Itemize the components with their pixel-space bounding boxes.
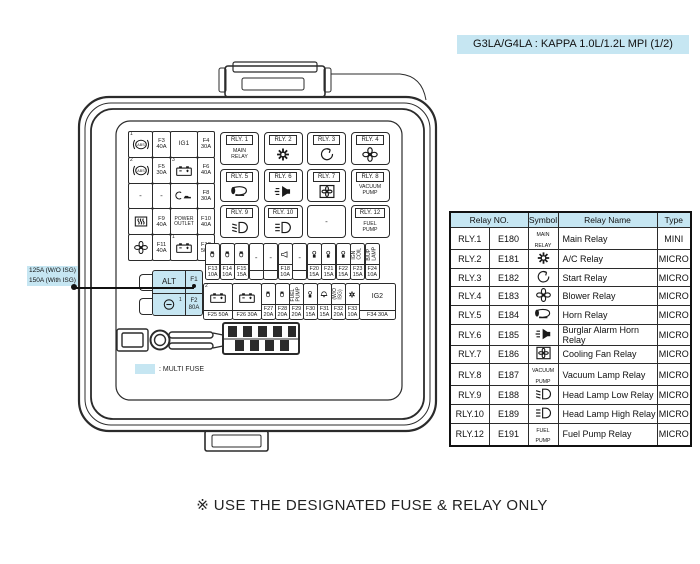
horn-icon bbox=[229, 184, 251, 199]
fuse-amp-label: F3 40A bbox=[153, 137, 170, 151]
fuse-cell-f15: F15 15A bbox=[234, 243, 249, 280]
svg-text:ABS: ABS bbox=[137, 169, 145, 173]
cooling-fan-icon bbox=[533, 346, 554, 360]
fuse-amp-label: F20 15A bbox=[308, 264, 321, 279]
fuse-cell-text: IG2 bbox=[372, 294, 383, 300]
fuse-cell-symbol bbox=[221, 244, 234, 264]
callout-line-1: 125A (W/O ISG) bbox=[27, 266, 78, 276]
fuse-cell-symbol: IG2 bbox=[360, 284, 395, 310]
table-row-rly-8: RLY.8E187VACUUM PUMPVacuum Lamp RelayMIC… bbox=[450, 364, 691, 386]
fuse-cell-text: POWER OUTLET bbox=[174, 217, 194, 227]
col-header-relay-no: Relay NO. bbox=[450, 212, 528, 228]
table-row-rly-6: RLY.6E185Burglar Alarm Horn RelayMICRO bbox=[450, 324, 691, 345]
fuse-amp-label bbox=[264, 270, 277, 279]
fuse-amp-label: F33 10A bbox=[346, 304, 359, 319]
ignition-coil-icon bbox=[337, 248, 350, 261]
left-grid-cell: F4 30A bbox=[197, 131, 215, 158]
cell-type: MICRO bbox=[657, 404, 691, 423]
fuse-icon bbox=[206, 248, 219, 261]
alt-side-tab bbox=[139, 298, 152, 315]
cell-code: E185 bbox=[489, 324, 528, 345]
table-row-rly-3: RLY.3E182Start RelayMICRO bbox=[450, 268, 691, 287]
alt-cell-f1: F1 bbox=[186, 271, 202, 294]
cell-relay: RLY.12 bbox=[450, 423, 489, 446]
ac-compressor-icon bbox=[272, 147, 294, 162]
cell-relay: RLY.3 bbox=[450, 268, 489, 287]
heater-icon bbox=[131, 215, 151, 228]
fuse-amp-label: F18 10A bbox=[279, 264, 292, 279]
fuse-cell-text: IG1 bbox=[179, 141, 189, 147]
bell-icon bbox=[318, 288, 330, 301]
cell-relay-name: Main Relay bbox=[558, 228, 657, 250]
cell-symbol bbox=[528, 250, 558, 269]
relay-label: RLY. 2 bbox=[269, 135, 296, 145]
table-row-rly-7: RLY.7E186Cooling Fan RelayMICRO bbox=[450, 345, 691, 364]
cell-code: E191 bbox=[489, 423, 528, 446]
abs-icon: ABS bbox=[131, 138, 151, 151]
relay-symbol bbox=[221, 182, 258, 201]
cell-relay: RLY.10 bbox=[450, 404, 489, 423]
fuse-amp-label: F15 15A bbox=[235, 264, 248, 279]
alt-cell: ALT bbox=[153, 271, 186, 294]
fuse-cell-symbol bbox=[346, 284, 359, 304]
cell-relay-name: Head Lamp Low Relay bbox=[558, 386, 657, 405]
left-grid-cell bbox=[128, 208, 153, 235]
relay-table-header-row: Relay NO.SymbolRelay NameType bbox=[450, 212, 691, 228]
blower-fan-icon bbox=[131, 241, 151, 254]
cell-code: E188 bbox=[489, 386, 528, 405]
relay-symbol: VACUUM PUMP bbox=[352, 182, 389, 201]
fuse-amp-label: F34 30A bbox=[360, 310, 395, 319]
table-row-rly-9: RLY.9E188Head Lamp Low RelayMICRO bbox=[450, 386, 691, 405]
fuse-cell-symbol bbox=[262, 284, 275, 304]
cell-code: E189 bbox=[489, 404, 528, 423]
fuse-icon bbox=[221, 248, 234, 261]
fuse-superscript: 1 bbox=[130, 132, 133, 137]
cell-relay-name: Head Lamp High Relay bbox=[558, 404, 657, 423]
relay-symbol-text: FUEL PUMP bbox=[363, 222, 378, 233]
fuse-superscript: 1 bbox=[172, 235, 175, 240]
left-grid-cell: F8 30A bbox=[197, 183, 215, 210]
start-relay-icon bbox=[316, 147, 338, 162]
table-row-rly-5: RLY.5E184Horn RelayMICRO bbox=[450, 305, 691, 324]
manual-page: G3LA/G4LA : KAPPA 1.0L/1.2L MPI (1/2) bbox=[0, 0, 700, 564]
left-grid-cell bbox=[170, 183, 198, 210]
fuse-cell-f21: F21 15A bbox=[321, 243, 336, 280]
cell-symbol bbox=[528, 404, 558, 423]
cell-relay: RLY.9 bbox=[450, 386, 489, 405]
multi-fuse-legend: : MULTI FUSE bbox=[135, 364, 204, 374]
fuse-amp-label: F10 40A bbox=[198, 215, 214, 229]
cell-symbol: VACUUM PUMP bbox=[528, 364, 558, 386]
fuse-cell-text: - bbox=[160, 191, 163, 200]
fuse-cell-symbol bbox=[233, 284, 261, 310]
cell-relay: RLY.5 bbox=[450, 305, 489, 324]
multi-fuse-label: : MULTI FUSE bbox=[159, 366, 204, 373]
burglar-alarm-horn-icon bbox=[533, 327, 554, 341]
cell-relay: RLY.6 bbox=[450, 324, 489, 345]
left-grid-cell: F3 40A bbox=[152, 131, 171, 158]
symbol-text: VACUUM PUMP bbox=[532, 368, 554, 385]
left-grid-cell: ABS2 bbox=[128, 157, 153, 184]
fuse-cell-f13: F13 10A bbox=[205, 243, 220, 280]
fuse-cell-f25: 2F25 50A bbox=[203, 283, 233, 320]
fuse-cell-f31: F31 15A bbox=[317, 283, 332, 320]
cell-relay-name: Blower Relay bbox=[558, 287, 657, 306]
fuse-cell-symbol bbox=[279, 244, 292, 264]
fuse-vertical-label: B/UP LAMP bbox=[367, 247, 378, 261]
fuse-cell-f32: (W/O ISG)F32 20A bbox=[331, 283, 346, 320]
fuse-cell-symbol: - bbox=[264, 244, 277, 270]
cell-relay: RLY.1 bbox=[450, 228, 489, 250]
cell-type: MICRO bbox=[657, 386, 691, 405]
alternator-fuse-callout: 125A (W/O ISG) 150A (With ISG) bbox=[27, 266, 78, 286]
fuse-cell-symbol bbox=[276, 284, 289, 304]
battery-icon bbox=[208, 291, 228, 304]
relay-label: RLY. 3 bbox=[313, 135, 340, 145]
cell-relay: RLY.4 bbox=[450, 287, 489, 306]
fuse-amp-label: F27 20A bbox=[262, 304, 275, 319]
fuse-cell-symbol bbox=[204, 284, 232, 310]
alt-cell-f2: F2 80A bbox=[186, 294, 202, 316]
fuse-cell-symbol bbox=[337, 244, 350, 264]
gear-icon bbox=[346, 288, 358, 301]
fuse-cell-f14: F14 10A bbox=[220, 243, 235, 280]
cell-type: MICRO bbox=[657, 423, 691, 446]
fuse-cell-symbol bbox=[304, 284, 317, 304]
fuse-cell-f33: F33 10A bbox=[345, 283, 360, 320]
fuse-amp-label: F21 15A bbox=[322, 264, 335, 279]
horn-small-icon bbox=[279, 248, 292, 261]
left-grid-cell: F6 40A bbox=[197, 157, 215, 184]
fuse-cell-symbol: - bbox=[293, 244, 306, 270]
relay-box-rly-9: RLY. 9 bbox=[220, 205, 259, 238]
fuse-cell-symbol: IGN COIL bbox=[351, 244, 364, 264]
footer-warning: ※ USE THE DESIGNATED FUSE & RELAY ONLY bbox=[44, 496, 700, 514]
relay-symbol bbox=[265, 145, 302, 164]
col-header-relay-name: Relay Name bbox=[558, 212, 657, 228]
left-grid-cell: F11 40A bbox=[152, 234, 171, 261]
fuse-cell: - bbox=[249, 243, 264, 280]
fuse-cell-symbol: - bbox=[250, 244, 263, 270]
fuse-cell-f26: F26 30A bbox=[232, 283, 262, 320]
cell-type: MINI bbox=[657, 228, 691, 250]
horn-icon bbox=[533, 307, 554, 321]
fuse-cell-f23: IGN COILF23 15A bbox=[350, 243, 365, 280]
relay-symbol-text: MAIN RELAY bbox=[231, 149, 248, 160]
col-header-type: Type bbox=[657, 212, 691, 228]
relay-label: RLY. 5 bbox=[226, 172, 253, 182]
relay-box-rly-1: RLY. 1MAIN RELAY bbox=[220, 132, 259, 165]
ac-compressor-icon bbox=[533, 251, 554, 265]
fuse-cell-symbol bbox=[308, 244, 321, 264]
headlamp-high-icon bbox=[272, 220, 294, 235]
relay-box-rly-2: RLY. 2 bbox=[264, 132, 303, 165]
fuse-amp-label: F9 40A bbox=[153, 215, 170, 229]
alternator-icon bbox=[159, 298, 179, 311]
alt-cell-symbol: 1 bbox=[153, 294, 186, 316]
relay-box-rly-8: RLY. 8VACUUM PUMP bbox=[351, 169, 390, 202]
relay-box-rly-5: RLY. 5 bbox=[220, 169, 259, 202]
fuse-cell-symbol: B/UP LAMP bbox=[366, 244, 379, 264]
fuse-cell-f28: F28 20A bbox=[275, 283, 290, 320]
relay-table: Relay NO.SymbolRelay NameTypeRLY.1E180MA… bbox=[449, 211, 692, 447]
relay-symbol bbox=[265, 182, 302, 201]
left-grid-cell: 1 bbox=[170, 234, 198, 261]
table-row-rly-2: RLY.2E181A/C RelayMICRO bbox=[450, 250, 691, 269]
fuse-icon bbox=[235, 248, 248, 261]
fuse-cell-f22: F22 15A bbox=[336, 243, 351, 280]
cell-relay-name: Vacuum Lamp Relay bbox=[558, 364, 657, 386]
fuse-cell-symbol bbox=[318, 284, 331, 304]
relay-box-rly-6: RLY. 6 bbox=[264, 169, 303, 202]
relay-box-rly-10: RLY. 10 bbox=[264, 205, 303, 238]
fuse-cell-f34: IG2F34 30A bbox=[359, 283, 396, 320]
symbol-text: MAIN RELAY bbox=[535, 232, 552, 249]
fuse-cell-symbol: (W/O ISG) bbox=[332, 284, 345, 304]
fuse-vertical-label: IGN COIL bbox=[352, 248, 363, 260]
fuse-amp-label: F30 15A bbox=[304, 304, 317, 319]
empty-slot: - bbox=[269, 253, 272, 262]
cell-type: MICRO bbox=[657, 250, 691, 269]
cell-type: MICRO bbox=[657, 345, 691, 364]
table-row-rly-10: RLY.10E189Head Lamp High RelayMICRO bbox=[450, 404, 691, 423]
relay-symbol bbox=[352, 145, 389, 164]
cell-symbol bbox=[528, 268, 558, 287]
fuse-cell-symbol bbox=[235, 244, 248, 264]
fuse-cell-symbol bbox=[322, 244, 335, 264]
fuse-amp-label: F13 10A bbox=[206, 264, 219, 279]
start-relay-icon bbox=[533, 270, 554, 284]
cell-type: MICRO bbox=[657, 287, 691, 306]
cell-type: MICRO bbox=[657, 324, 691, 345]
deicer-icon bbox=[174, 189, 194, 202]
cell-type: MICRO bbox=[657, 268, 691, 287]
fuse-icon bbox=[276, 288, 288, 301]
left-grid-cell bbox=[128, 234, 153, 261]
fuse-vertical-label: FUEL PUMP bbox=[291, 287, 302, 301]
relay-label: RLY. 1 bbox=[226, 135, 253, 145]
fuse-cell-text: - bbox=[139, 191, 142, 200]
fuse-amp-label: F4 30A bbox=[198, 137, 214, 151]
fuse-cell-f27: F27 20A bbox=[261, 283, 276, 320]
left-grid-cell: POWER OUTLET bbox=[170, 208, 198, 235]
svg-text:ABS: ABS bbox=[137, 143, 145, 147]
left-grid-cell: - bbox=[128, 183, 153, 210]
cell-relay: RLY.8 bbox=[450, 364, 489, 386]
relay-label: RLY. 12 bbox=[355, 208, 385, 218]
callout-dot bbox=[71, 284, 77, 290]
multi-fuse-swatch bbox=[135, 364, 155, 374]
fuse-superscript: 2 bbox=[205, 284, 208, 289]
callout-connector-line bbox=[74, 287, 194, 289]
relay-symbol: MAIN RELAY bbox=[221, 145, 258, 164]
fuse-amp-label: F24 10A bbox=[366, 264, 379, 279]
cell-relay-name: Cooling Fan Relay bbox=[558, 345, 657, 364]
cell-code: E182 bbox=[489, 268, 528, 287]
headlamp-low-icon bbox=[533, 387, 554, 401]
fuse-amp-label: F5 30A bbox=[153, 163, 170, 177]
cell-code: E186 bbox=[489, 345, 528, 364]
fuse-amp-label: F8 30A bbox=[198, 189, 214, 203]
relay-box-rly-12: RLY. 12FUEL PUMP bbox=[351, 205, 390, 238]
symbol-text: FUEL PUMP bbox=[536, 428, 551, 445]
fuse-cell-f18: F18 10A bbox=[278, 243, 293, 280]
relay-label: RLY. 9 bbox=[226, 208, 253, 218]
cell-relay: RLY.7 bbox=[450, 345, 489, 364]
fuse-cell-symbol bbox=[206, 244, 219, 264]
left-grid-cell: F9 40A bbox=[152, 208, 171, 235]
empty-slot: - bbox=[298, 253, 301, 262]
relay-symbol bbox=[221, 218, 258, 237]
alt-multi-fuse-block: ALTF11F2 80A bbox=[152, 270, 203, 316]
relay-symbol: FUEL PUMP bbox=[352, 218, 389, 237]
relay-box-rly-7: RLY. 7 bbox=[307, 169, 346, 202]
cell-symbol bbox=[528, 345, 558, 364]
table-row-rly-1: RLY.1E180MAIN RELAYMain RelayMINI bbox=[450, 228, 691, 250]
left-grid-cell: ABS1 bbox=[128, 131, 153, 158]
fuse-amp-label: F25 50A bbox=[204, 310, 232, 319]
cell-code: E180 bbox=[489, 228, 528, 250]
cell-code: E183 bbox=[489, 287, 528, 306]
fuse-amp-label: F6 40A bbox=[198, 163, 214, 177]
ignition-coil-icon bbox=[304, 288, 316, 301]
cell-relay-name: A/C Relay bbox=[558, 250, 657, 269]
left-grid-cell: - bbox=[152, 183, 171, 210]
fuse-cell-f30: F30 15A bbox=[303, 283, 318, 320]
left-grid-cell: 3 bbox=[170, 157, 198, 184]
left-grid-cell: F5 30A bbox=[152, 157, 171, 184]
fuse-cell: - bbox=[292, 243, 307, 280]
fuse-cell: - bbox=[263, 243, 278, 280]
engine-variant-title: G3LA/G4LA : KAPPA 1.0L/1.2L MPI (1/2) bbox=[457, 35, 689, 54]
relay-box: - bbox=[307, 205, 346, 238]
empty-slot: - bbox=[255, 253, 258, 262]
relay-symbol bbox=[265, 218, 302, 237]
cell-code: E187 bbox=[489, 364, 528, 386]
cell-relay-name: Fuel Pump Relay bbox=[558, 423, 657, 446]
relay-symbol bbox=[308, 182, 345, 201]
abs-icon: ABS bbox=[131, 164, 151, 177]
cell-symbol bbox=[528, 287, 558, 306]
headlamp-low-icon bbox=[229, 220, 251, 235]
relay-box-rly-3: RLY. 3 bbox=[307, 132, 346, 165]
blower-fan-icon bbox=[533, 288, 554, 302]
left-grid-cell: F10 40A bbox=[197, 208, 215, 235]
battery-icon bbox=[174, 241, 194, 254]
left-grid-cell: IG1 bbox=[170, 131, 198, 158]
cell-code: E181 bbox=[489, 250, 528, 269]
cell-relay: RLY.2 bbox=[450, 250, 489, 269]
fuse-amp-label: F14 10A bbox=[221, 264, 234, 279]
cell-symbol bbox=[528, 324, 558, 345]
relay-box-rly-4: RLY. 4 bbox=[351, 132, 390, 165]
fuse-amp-label: F26 30A bbox=[233, 310, 261, 319]
fuse-superscript: 1 bbox=[179, 298, 182, 303]
fuse-amp-label bbox=[293, 270, 306, 279]
fuse-cell-f29: FUEL PUMPF29 20A bbox=[289, 283, 304, 320]
relay-symbol bbox=[308, 145, 345, 164]
callout-line-2: 150A (With ISG) bbox=[27, 276, 78, 286]
cooling-fan-icon bbox=[316, 184, 338, 199]
cell-symbol bbox=[528, 305, 558, 324]
blower-fan-icon bbox=[359, 147, 381, 162]
table-row-rly-12: RLY.12E191FUEL PUMPFuel Pump RelayMICRO bbox=[450, 423, 691, 446]
relay-label: RLY. 10 bbox=[268, 208, 298, 218]
headlamp-high-icon bbox=[533, 406, 554, 420]
burglar-alarm-horn-icon bbox=[272, 184, 294, 199]
cell-relay-name: Horn Relay bbox=[558, 305, 657, 324]
ignition-coil-icon bbox=[308, 248, 321, 261]
cell-symbol bbox=[528, 386, 558, 405]
battery-icon bbox=[237, 291, 257, 304]
fuse-amp-label: F29 20A bbox=[290, 304, 303, 319]
fuse-cell-symbol: FUEL PUMP bbox=[290, 284, 303, 304]
cell-relay-name: Burglar Alarm Horn Relay bbox=[558, 324, 657, 345]
empty-slot: - bbox=[325, 217, 328, 226]
fuse-amp-label: F32 20A bbox=[332, 304, 345, 319]
cell-code: E184 bbox=[489, 305, 528, 324]
relay-label: RLY. 7 bbox=[313, 172, 340, 182]
cell-relay-name: Start Relay bbox=[558, 268, 657, 287]
fuse-amp-label: F11 40A bbox=[153, 241, 170, 255]
fuse-cell-f24: B/UP LAMPF24 10A bbox=[365, 243, 380, 280]
relay-symbol-text: VACUUM PUMP bbox=[359, 185, 381, 196]
fuse-vertical-label: (W/O ISG) bbox=[333, 288, 344, 300]
cell-symbol: MAIN RELAY bbox=[528, 228, 558, 250]
battery-icon bbox=[174, 164, 194, 177]
cell-type: MICRO bbox=[657, 364, 691, 386]
col-header-symbol: Symbol bbox=[528, 212, 558, 228]
table-row-rly-4: RLY.4E183Blower RelayMICRO bbox=[450, 287, 691, 306]
fuse-amp-label: F23 15A bbox=[351, 264, 364, 279]
ignition-coil-icon bbox=[322, 248, 335, 261]
cell-symbol: FUEL PUMP bbox=[528, 423, 558, 446]
relay-label: RLY. 8 bbox=[356, 172, 383, 182]
fuse-superscript: 3 bbox=[172, 158, 175, 163]
fuse-icon bbox=[262, 288, 274, 301]
relay-label: RLY. 6 bbox=[269, 172, 296, 182]
fuse-superscript: 2 bbox=[130, 158, 133, 163]
fuse-amp-label: F22 15A bbox=[337, 264, 350, 279]
fuse-amp-label: F28 20A bbox=[276, 304, 289, 319]
cell-type: MICRO bbox=[657, 305, 691, 324]
relay-label: RLY. 4 bbox=[356, 135, 383, 145]
fuse-cell-f20: F20 15A bbox=[307, 243, 322, 280]
fusebox-diagram: : MULTI FUSE ABS1F3 40AIG1F4 30AABS2F5 3… bbox=[70, 60, 442, 460]
fuse-amp-label bbox=[250, 270, 263, 279]
fuse-amp-label: F31 15A bbox=[318, 304, 331, 319]
